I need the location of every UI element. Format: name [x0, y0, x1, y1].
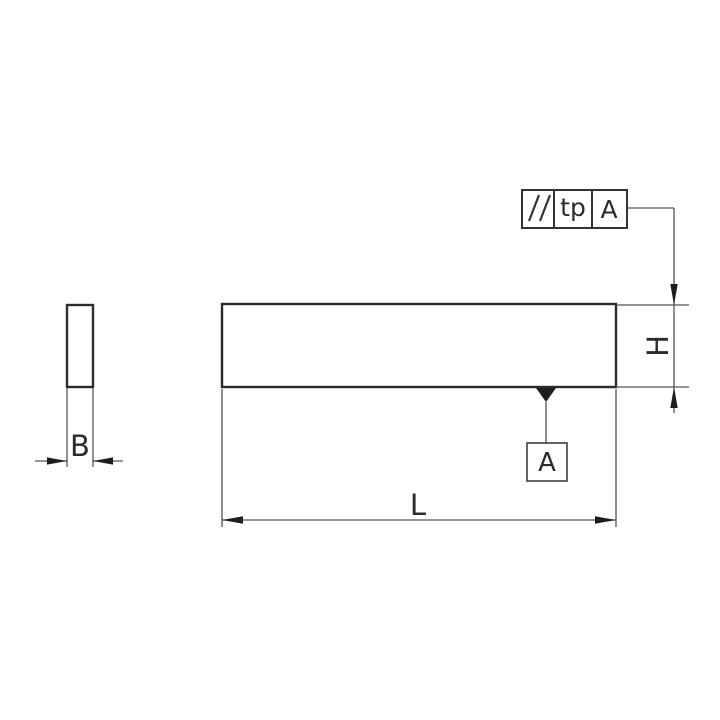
gdt-tolerance-label: tp [560, 193, 586, 222]
dimension-l-arrow-right-icon [595, 516, 616, 523]
technical-drawing: B L H [0, 0, 720, 720]
datum-label: A [538, 448, 556, 478]
dimension-h-arrow-bottom-icon [670, 387, 677, 408]
dimension-b-arrow-left-icon [47, 457, 67, 464]
side-view [67, 305, 93, 387]
dimension-b-arrow-right-icon [93, 457, 113, 464]
technical-drawing-canvas: B L H [0, 0, 720, 720]
gdt-datum-reference-label: A [600, 195, 617, 224]
parallelism-icon [529, 195, 550, 221]
gdt-feature-control-frame: tp A [522, 190, 674, 228]
datum-triangle-icon [536, 388, 556, 402]
dimension-h-arrow-top-icon [670, 284, 677, 305]
dimension-h: H [616, 208, 689, 413]
dimension-l: L [222, 389, 616, 527]
dimension-l-arrow-left-icon [222, 516, 243, 523]
side-view-outline [67, 305, 93, 387]
dimension-l-label: L [410, 488, 426, 522]
dimension-b: B [35, 388, 123, 467]
dimension-b-label: B [70, 429, 90, 463]
front-view [222, 304, 616, 387]
dimension-h-label: H [641, 335, 675, 357]
datum-feature-symbol: A [527, 388, 567, 481]
front-view-outline [222, 304, 616, 387]
